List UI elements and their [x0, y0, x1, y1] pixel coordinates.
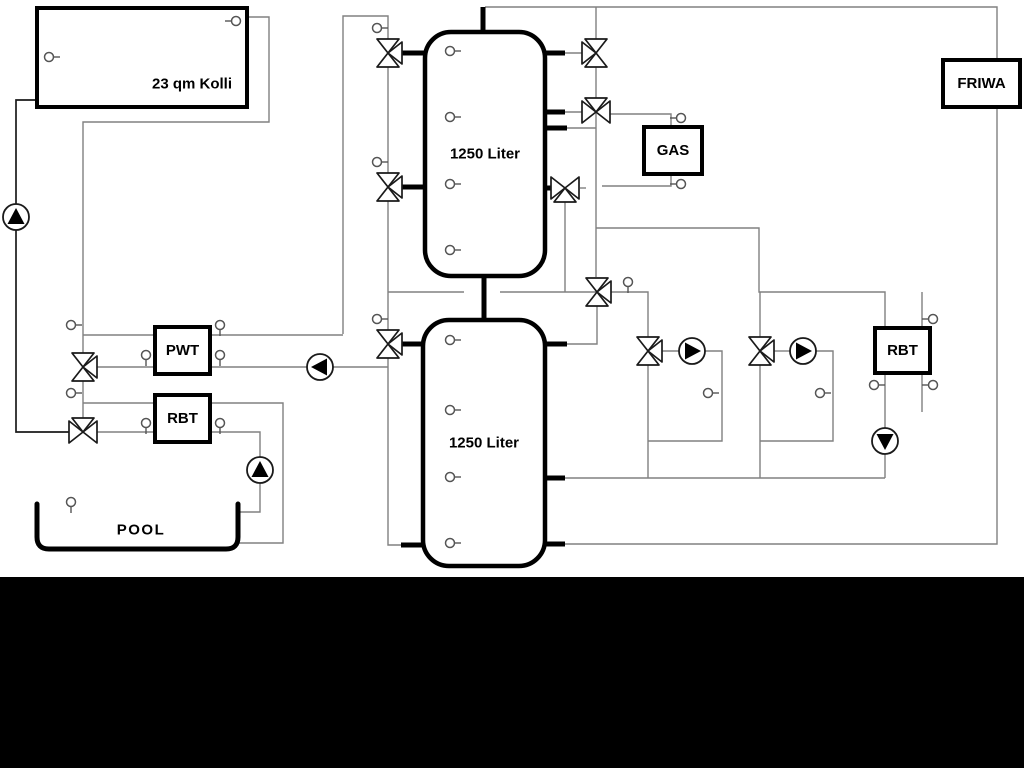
friwa-box-label: FRIWA: [957, 75, 1005, 92]
temperature-sensor-icon: [704, 389, 713, 398]
temperature-sensor-icon: [624, 278, 633, 287]
temperature-sensor-icon: [446, 539, 455, 548]
temperature-sensor-icon: [446, 406, 455, 415]
rbt-left-box-label: RBT: [167, 410, 198, 427]
temperature-sensor-icon: [216, 351, 225, 360]
pool-label: POOL: [117, 522, 166, 539]
temperature-sensor-icon: [67, 321, 76, 330]
schematic-canvas: POOL1250 Liter1250 Liter23 qm KolliPWTRB…: [0, 0, 1024, 768]
temperature-sensor-icon: [677, 180, 686, 189]
temperature-sensor-icon: [373, 315, 382, 324]
temperature-sensor-icon: [446, 473, 455, 482]
temperature-sensor-icon: [446, 180, 455, 189]
temperature-sensor-icon: [45, 53, 54, 62]
temperature-sensor-icon: [67, 389, 76, 398]
temperature-sensor-icon: [929, 315, 938, 324]
rbt-right-box-label: RBT: [887, 342, 918, 359]
temperature-sensor-icon: [446, 113, 455, 122]
temperature-sensor-icon: [870, 381, 879, 390]
buffer-tank-upper-label: 1250 Liter: [450, 146, 520, 163]
temperature-sensor-icon: [373, 24, 382, 33]
solar-collector-box-label: 23 qm Kolli: [152, 76, 232, 93]
buffer-tank-lower-label: 1250 Liter: [449, 435, 519, 452]
temperature-sensor-icon: [142, 351, 151, 360]
temperature-sensor-icon: [816, 389, 825, 398]
temperature-sensor-icon: [929, 381, 938, 390]
temperature-sensor-icon: [446, 246, 455, 255]
temperature-sensor-icon: [216, 419, 225, 428]
temperature-sensor-icon: [232, 17, 241, 26]
bottom-black-band: [0, 577, 1024, 768]
temperature-sensor-icon: [373, 158, 382, 167]
temperature-sensor-icon: [446, 336, 455, 345]
schematic: POOL1250 Liter1250 Liter23 qm KolliPWTRB…: [0, 0, 1024, 768]
temperature-sensor-icon: [216, 321, 225, 330]
gas-boiler-box-label: GAS: [657, 142, 690, 159]
pwt-box-label: PWT: [166, 342, 199, 359]
temperature-sensor-icon: [677, 114, 686, 123]
temperature-sensor-icon: [142, 419, 151, 428]
temperature-sensor-icon: [446, 47, 455, 56]
temperature-sensor-icon: [67, 498, 76, 507]
